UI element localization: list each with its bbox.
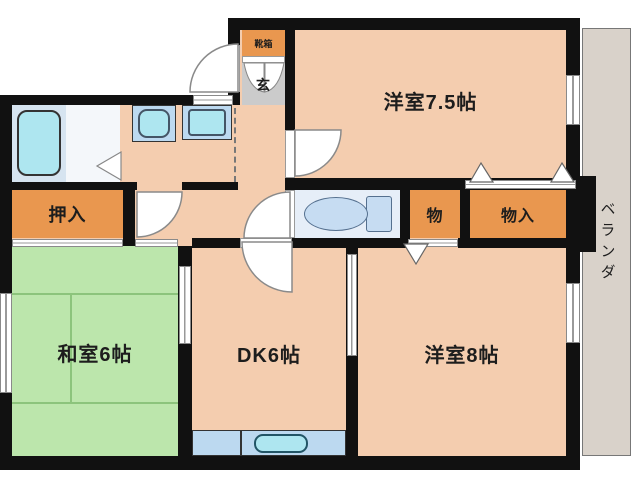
window — [193, 95, 233, 105]
sliding-door-japanese-dk — [179, 266, 191, 344]
label-monoire: 物入 — [470, 190, 566, 238]
window — [566, 75, 580, 125]
wall — [123, 182, 135, 246]
washbasin-bowl — [138, 109, 170, 138]
wall — [285, 30, 295, 130]
wall — [192, 238, 240, 248]
label-oshiire: 押入 — [12, 190, 123, 238]
doorway-dk — [240, 238, 292, 248]
doorway-western-7-5 — [285, 130, 295, 178]
label-mono: 物 — [410, 190, 460, 238]
wall — [182, 182, 238, 190]
genkan-door-frame — [242, 56, 285, 63]
label-shoe-cabinet: 靴箱 — [242, 30, 285, 56]
wall — [0, 95, 12, 470]
wall — [578, 176, 596, 252]
entrance-doorway — [228, 45, 240, 92]
label-genkan: 玄 — [242, 66, 285, 104]
closet-door-mono — [408, 239, 458, 247]
wall — [458, 238, 580, 248]
wall — [228, 18, 240, 45]
room-label-western-8: 洋室8帖 — [358, 248, 566, 458]
dashed-partition — [234, 108, 236, 182]
room-label-japanese-6: 和室6帖 — [12, 246, 178, 458]
washing-machine-tub — [188, 109, 226, 136]
window — [566, 283, 580, 343]
doorway-toilet — [285, 190, 295, 238]
bathroom-dry-area — [66, 105, 120, 182]
room-label-western-7-5: 洋室7.5帖 — [295, 30, 566, 170]
closet-doors-monoire — [465, 180, 576, 189]
window — [0, 293, 12, 393]
wall — [292, 238, 408, 248]
wall — [460, 182, 470, 248]
toilet-tank — [366, 196, 392, 232]
room-label-dk: DK6帖 — [192, 248, 346, 458]
sliding-door-dk-western8 — [347, 254, 357, 356]
bathtub — [17, 110, 61, 176]
wall — [228, 18, 580, 30]
wall — [12, 182, 125, 190]
wall — [0, 456, 580, 470]
outside-area — [0, 0, 228, 95]
toilet-bowl — [304, 197, 368, 231]
floorplan-canvas: ベランダ — [0, 0, 640, 480]
